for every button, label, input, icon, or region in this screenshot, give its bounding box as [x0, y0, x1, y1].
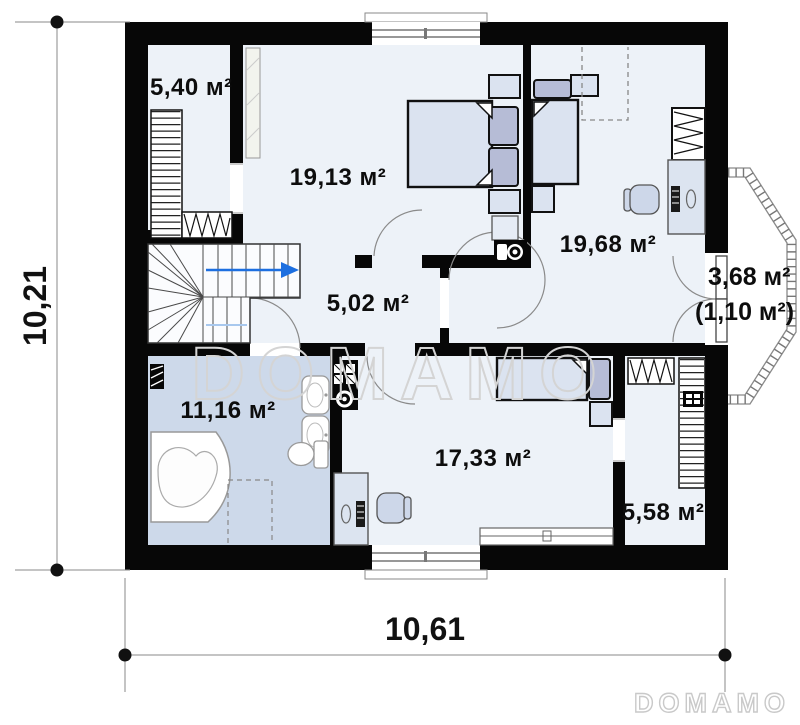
headboard-shelf — [571, 75, 598, 96]
area-label-balcony: 3,68 м² — [708, 263, 790, 292]
area-label-balcony-alt: (1,10 м²) — [695, 298, 794, 327]
area-label-hall: 5,02 м² — [318, 290, 418, 318]
window-top — [365, 13, 487, 45]
wardrobe-right — [672, 108, 705, 160]
area-label-wardrobe-bottom: 5,58 м² — [617, 499, 709, 527]
floor-plan: DOMAMO DOMAMO 5,40 м² 19,13 м² 19,68 м² … — [0, 0, 800, 725]
window-bottom — [365, 545, 487, 579]
chair-bottom — [377, 493, 411, 523]
pillow — [489, 107, 518, 145]
radiator-icon — [150, 364, 164, 389]
open-door-leaf — [246, 48, 260, 158]
bench — [492, 216, 518, 240]
chimney-box — [494, 240, 527, 264]
area-label-bedroom-bottom: 17,33 м² — [428, 445, 538, 473]
area-label-bedroom-right: 19,68 м² — [556, 231, 660, 259]
area-label-wardrobe-top: 5,40 м² — [150, 74, 240, 102]
dimension-side: 10,21 — [17, 251, 53, 361]
low-window-radiator — [480, 528, 613, 545]
pillow — [534, 80, 571, 98]
dimension-front: 10,61 — [325, 611, 525, 648]
desk-right — [668, 160, 705, 234]
keyboard-icon — [356, 501, 365, 527]
nightstand — [489, 190, 520, 213]
area-label-bedroom-left: 19,13 м² — [287, 164, 389, 192]
nightstand — [532, 186, 554, 212]
pillow — [489, 148, 518, 186]
wall-left — [125, 22, 148, 570]
bathtub — [151, 432, 230, 522]
nightstand — [489, 75, 520, 98]
chair-right — [624, 185, 659, 214]
keyboard-icon — [671, 186, 680, 212]
desk-bottom — [334, 473, 368, 545]
toilet — [288, 441, 328, 468]
brand-logo: DOMAMO — [634, 688, 790, 718]
drawer-box — [683, 391, 703, 407]
area-label-bathroom: 11,16 м² — [173, 397, 283, 425]
